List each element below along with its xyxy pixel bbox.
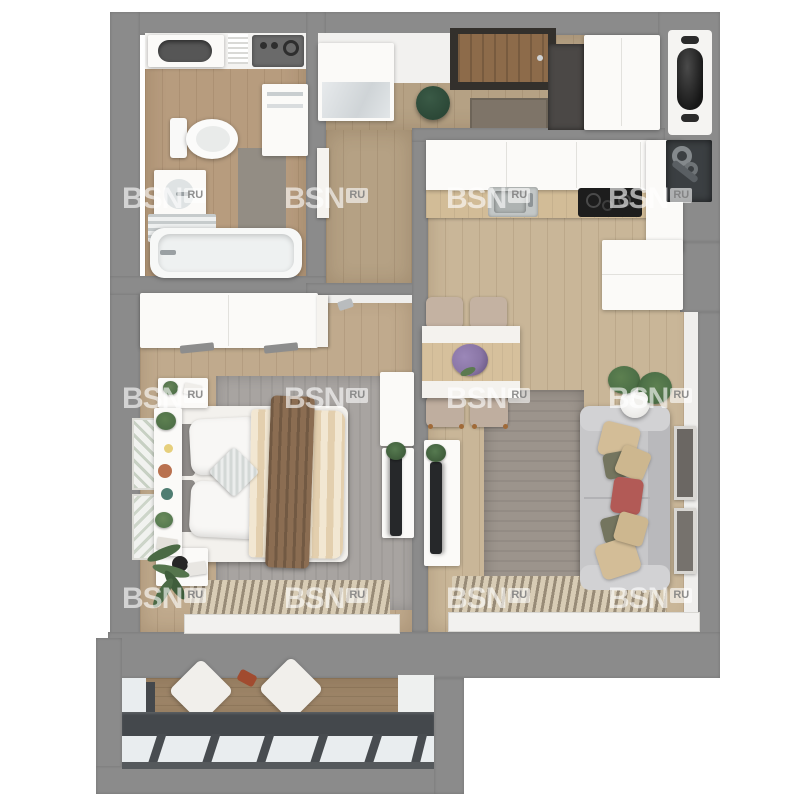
dining-chair (470, 297, 507, 329)
bedroom-door (317, 295, 328, 347)
washing-machine-knob (271, 42, 278, 49)
corridor-bottom-wall (306, 283, 422, 295)
nightstand-magazine (187, 561, 207, 576)
wardrobe-seam (228, 295, 229, 346)
dining-chair (426, 297, 463, 329)
bathtub-faucet (160, 250, 176, 255)
dining-chair (470, 396, 508, 427)
balcony-frame-lip (122, 762, 434, 769)
chair-leg (503, 424, 508, 429)
watermark-tile: BSNRU (770, 584, 800, 614)
console-vase (161, 488, 173, 500)
nightstand-plant (163, 381, 178, 395)
chair-leg (428, 424, 433, 429)
wall-art (674, 426, 696, 500)
niche-vessel-cap (681, 114, 699, 122)
watermark-brand: BSN (770, 184, 800, 214)
headboard-console (154, 408, 182, 556)
table-runner (422, 326, 520, 343)
wall-right-mid (680, 242, 720, 312)
wall-right-low (698, 312, 720, 678)
bathroom-door (317, 148, 329, 218)
sofa-cushion-red (610, 476, 645, 516)
living-window-sill (448, 612, 700, 632)
dark-cabinet (548, 44, 584, 130)
bathtub-basin (158, 234, 294, 272)
console-plant (155, 512, 173, 528)
bedroom-radiator (190, 580, 390, 616)
washbasin-faucet (176, 192, 190, 196)
balcony-wall-right (434, 678, 464, 794)
toilet-seat (196, 126, 230, 152)
bath-mat (238, 148, 286, 234)
kitchen-faucet (528, 193, 533, 207)
cabinet-seam (576, 142, 577, 188)
watermark-tile: BSNRU (770, 384, 800, 414)
watermark-brand: BSN (770, 384, 800, 414)
wardrobe-seam (621, 38, 622, 126)
throw-blanket (265, 395, 315, 568)
console-plant (156, 412, 176, 430)
door-mat (470, 98, 548, 130)
toilet-tank (170, 118, 187, 158)
watermark-tile: BSNRU (770, 184, 800, 214)
watermark-brand: BSN (770, 584, 800, 614)
kitchen-sink-basin (494, 191, 526, 213)
towel-bar (267, 104, 303, 108)
dining-chair (426, 396, 464, 427)
niche-vessel-cap (681, 36, 699, 44)
wall-art (674, 508, 696, 574)
cooktop-burner (602, 200, 613, 211)
living-tv (430, 462, 442, 554)
chair-leg (472, 424, 477, 429)
console-candle (164, 444, 173, 453)
washing-machine-drum (283, 40, 299, 56)
corridor-floor (326, 130, 412, 285)
entry-tall-wardrobe (584, 35, 660, 130)
wall-top (110, 12, 720, 35)
balcony-wall-bottom (96, 766, 464, 794)
plant-pot (634, 392, 648, 406)
table-runner (422, 381, 520, 398)
cabinet-seam (506, 142, 507, 188)
cabinet-seam (640, 142, 641, 188)
balcony-glazing-beam (122, 712, 434, 736)
chair-leg (459, 424, 464, 429)
island-seam (602, 274, 683, 275)
entrance-door (458, 34, 548, 82)
entrance-door-handle (537, 55, 543, 61)
potted-plant (608, 366, 640, 394)
green-pouf (416, 86, 450, 120)
vanity-basin (158, 40, 212, 62)
kitchen-upper-cabinets (426, 140, 658, 190)
bathroom-slat-panel (228, 34, 248, 64)
tv-plant (426, 444, 446, 462)
sofa-backrest (648, 412, 670, 584)
bedroom-window-sill (184, 614, 400, 634)
tv-plant (386, 442, 406, 460)
kitchen-island-cabinet (602, 240, 683, 310)
bedroom-tv-cabinet (380, 372, 414, 446)
console-bowl (158, 464, 172, 478)
bedroom-wardrobe (140, 293, 318, 348)
washing-machine-knob (260, 42, 267, 49)
niche-vessel (677, 48, 703, 110)
cooktop-burner (618, 194, 631, 207)
hall-wardrobe-mirror (322, 82, 390, 118)
cooktop-burner (586, 193, 601, 208)
bedroom-tv (390, 456, 402, 536)
floorplan-render: BSNRUBSNRUBSNRUBSNRUBSNRUBSNRUBSNRUBSNRU… (0, 0, 800, 800)
towel-bar (267, 92, 303, 96)
